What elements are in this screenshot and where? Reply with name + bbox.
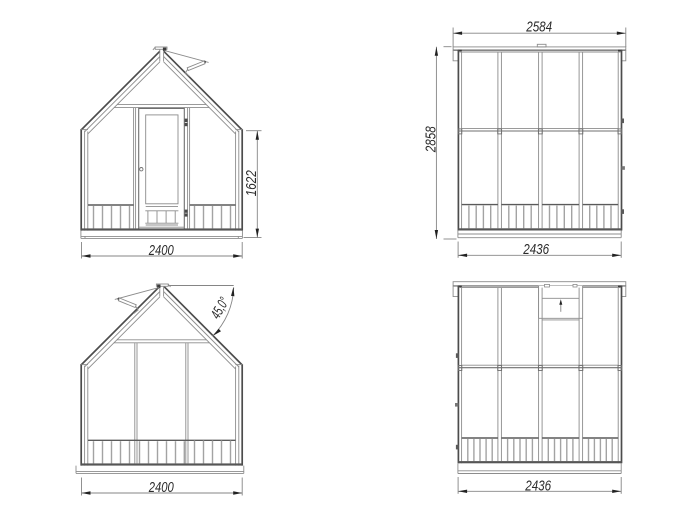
svg-text:2436: 2436 xyxy=(522,242,550,258)
svg-text:1622: 1622 xyxy=(244,170,260,196)
svg-text:2436: 2436 xyxy=(524,479,552,495)
svg-text:2400: 2400 xyxy=(148,243,174,259)
svg-text:2858: 2858 xyxy=(424,126,440,153)
svg-text:2400: 2400 xyxy=(148,480,174,496)
svg-text:2584: 2584 xyxy=(525,20,552,36)
